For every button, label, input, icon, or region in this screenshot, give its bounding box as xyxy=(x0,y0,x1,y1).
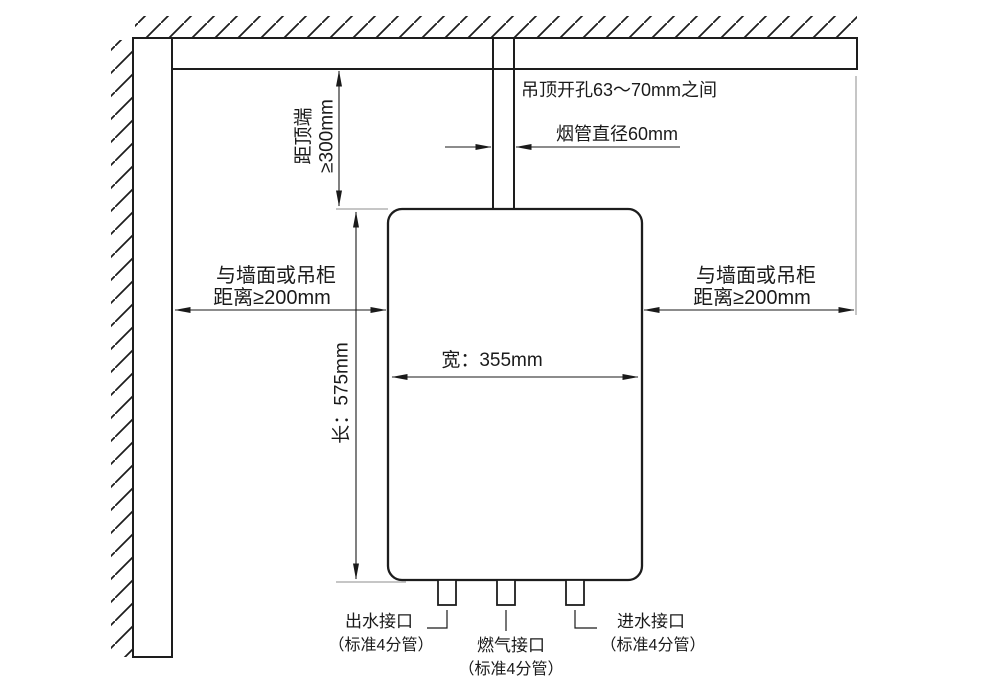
heater-body xyxy=(388,209,642,580)
top-clearance-label-line2: ≥300mm xyxy=(317,99,338,173)
height-dimension-label: 长：575mm xyxy=(331,342,353,443)
wall-hatching xyxy=(111,40,133,657)
gas-connection-label: 燃气接口 xyxy=(477,636,545,655)
inlet-leader-line xyxy=(575,610,597,628)
installation-diagram: 吊顶开孔63～70mm之间 烟管直径60mm 距顶端 ≥300mm 与墙面或吊柜… xyxy=(0,0,1000,695)
outlet-pipe xyxy=(438,580,456,605)
outlet-leader-line xyxy=(427,610,447,628)
left-clearance-label-line1: 与墙面或吊柜 xyxy=(216,264,336,287)
flue-diameter-label: 烟管直径60mm xyxy=(556,124,678,144)
top-clearance-label-line1: 距顶端 xyxy=(293,107,315,164)
right-clearance-label-line1: 与墙面或吊柜 xyxy=(696,264,816,287)
right-clearance-label-line2: 距离≥200mm xyxy=(693,286,811,309)
width-dimension-label: 宽：355mm xyxy=(441,349,542,371)
ceiling-hole-label: 吊顶开孔63～70mm之间 xyxy=(521,80,717,100)
inlet-connection-spec: （标准4分管） xyxy=(601,636,706,654)
outlet-connection-label: 出水接口 xyxy=(345,612,413,631)
gas-pipe xyxy=(497,580,515,605)
inlet-connection-label: 进水接口 xyxy=(617,612,685,631)
wall xyxy=(133,38,172,657)
left-clearance-label-line2: 距离≥200mm xyxy=(213,286,331,309)
installation-diagram-page: 吊顶开孔63～70mm之间 烟管直径60mm 距顶端 ≥300mm 与墙面或吊柜… xyxy=(0,0,1000,695)
ceiling-hatching xyxy=(135,16,857,38)
ceiling-slab xyxy=(133,38,857,69)
inlet-pipe xyxy=(566,580,584,605)
gas-connection-spec: （标准4分管） xyxy=(459,660,564,678)
outlet-connection-spec: （标准4分管） xyxy=(329,636,434,654)
